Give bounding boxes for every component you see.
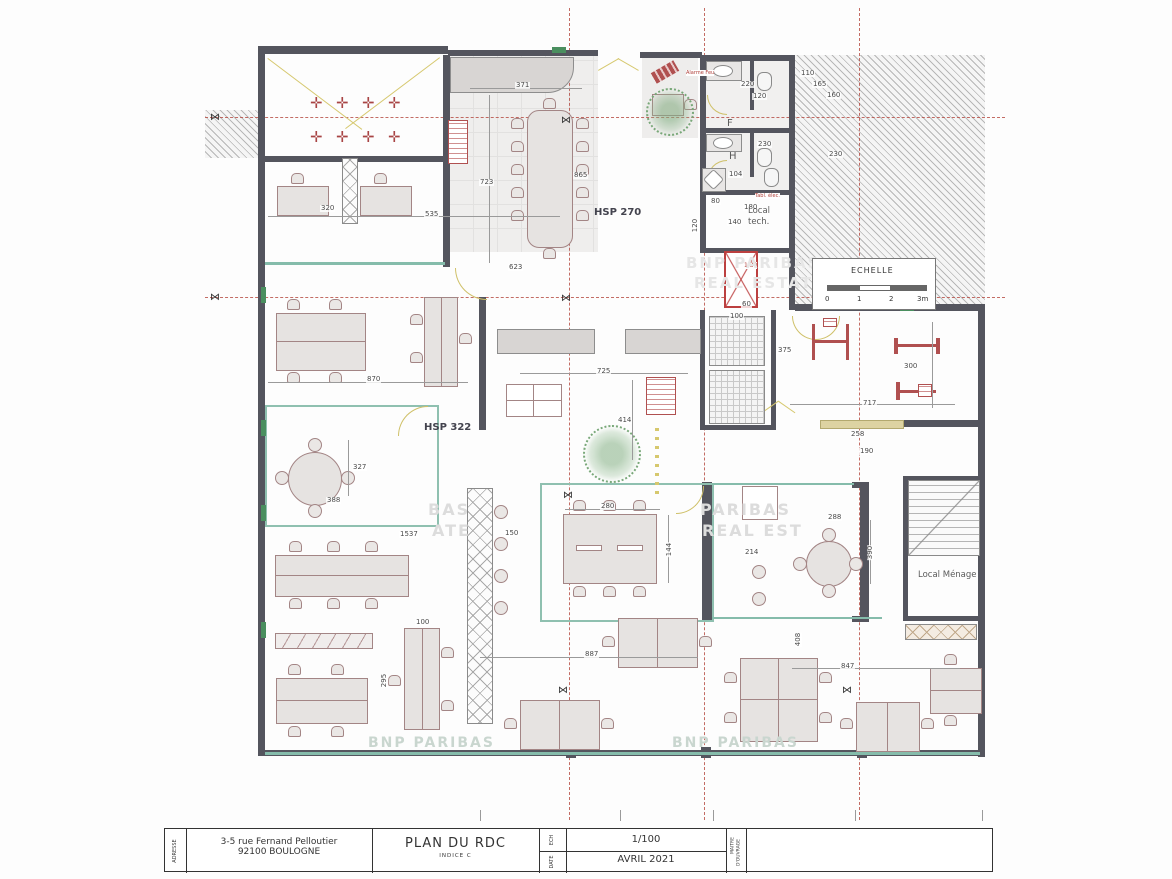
bicycle-icon: [310, 96, 323, 111]
room-label-local-tech: Local: [748, 206, 770, 216]
adresse-label: ADRESSE: [172, 829, 178, 873]
chair: [849, 557, 863, 571]
desk-divider: [657, 618, 658, 668]
dimension-label: 327: [352, 464, 367, 471]
chair: [543, 248, 556, 259]
dimension-label: 150: [504, 530, 519, 537]
window-mark: [261, 420, 266, 436]
watermark: REAL EST: [702, 521, 803, 540]
window-mark: [261, 287, 266, 303]
scale-bar-title: ECHELLE: [851, 266, 894, 275]
toilet: [757, 72, 772, 91]
chair: [511, 164, 524, 175]
title-block-cell: MAITRE D'OUVRAGE: [726, 829, 747, 873]
desk-divider: [778, 658, 779, 742]
wc-label-h: H: [729, 151, 737, 162]
desk: [360, 186, 412, 216]
scale-tick: 0: [825, 295, 829, 303]
chair: [819, 712, 832, 723]
dimension-label: 295: [381, 673, 388, 688]
date-label: DATE: [549, 848, 555, 876]
axis-marker-icon: [563, 491, 573, 501]
wall: [703, 128, 793, 133]
entrance-door-chevron: [618, 58, 639, 71]
desk-pod: [618, 618, 698, 668]
conference-table: [527, 110, 573, 248]
dimension-label: 300: [903, 363, 918, 370]
dimension-label: 288: [827, 514, 842, 521]
chair: [576, 118, 589, 129]
wall: [700, 310, 705, 430]
chair: [331, 664, 344, 675]
scale-bar-segment: [859, 285, 891, 291]
table-inset: [576, 545, 602, 551]
dimension-label: 1537: [399, 531, 419, 538]
dimension-label: 220: [740, 81, 755, 88]
chair: [576, 210, 589, 221]
room-label-local-menage: Local Ménage: [918, 570, 977, 580]
axis-marker-icon: [210, 293, 220, 303]
chair: [511, 141, 524, 152]
dimension-label: 717: [862, 400, 877, 407]
chair: [633, 586, 646, 597]
bicycle-icon: [362, 96, 375, 111]
bicycle-icon: [310, 130, 323, 145]
dim-line: [348, 440, 349, 496]
chair: [441, 700, 454, 711]
room-label-hsp270: HSP 270: [594, 207, 641, 218]
dimension-label: 80: [710, 198, 721, 205]
axis-line: [205, 117, 1005, 118]
wall: [448, 50, 598, 56]
chair: [441, 647, 454, 658]
chair: [289, 598, 302, 609]
gym-equipment: [936, 338, 940, 354]
sink: [713, 137, 733, 149]
dimension-label: 375: [777, 347, 792, 354]
desk-pod: [930, 668, 982, 714]
chair: [308, 438, 322, 452]
door-arc: [455, 268, 487, 300]
chair: [603, 586, 616, 597]
title-block: ADRESSE 3-5 rue Fernand Pelloutier 92100…: [164, 828, 993, 872]
dimension-label: 190: [859, 448, 874, 455]
dimension-label: 110: [800, 70, 815, 77]
desk-divider: [887, 702, 888, 752]
dimension-label: 100: [415, 619, 430, 626]
chair: [752, 592, 766, 606]
scale-value: 1/100: [566, 834, 726, 845]
wall: [771, 310, 776, 430]
cabinet: [905, 624, 977, 640]
title-block-cell-empty: [746, 829, 994, 873]
chair: [504, 718, 517, 729]
scale-bar-box: ECHELLE 0 1 2 3m: [812, 258, 936, 310]
wall: [852, 482, 869, 488]
kitchen-appliance: [448, 120, 468, 164]
watermark: PARIBAS: [700, 500, 791, 519]
round-table: [806, 541, 852, 587]
wall: [258, 46, 448, 54]
dimension-label: 104: [728, 171, 743, 178]
dimension-label: 390: [867, 545, 874, 560]
wc-label-f: F: [727, 118, 733, 129]
bicycle-icon: [336, 130, 349, 145]
wall: [903, 616, 983, 621]
bicycle-icon: [336, 96, 349, 111]
wall: [640, 52, 702, 58]
date-value: AVRIL 2021: [566, 854, 726, 865]
chair: [410, 314, 423, 325]
lounge-chair: [494, 569, 508, 583]
tree-icon: [646, 88, 694, 136]
fire-label: Alarme Feu: [686, 70, 714, 76]
chair: [699, 636, 712, 647]
chair: [724, 712, 737, 723]
gym-equipment: [918, 384, 932, 397]
axis-marker-icon: [842, 686, 852, 696]
dim-line: [792, 668, 960, 669]
gym-equipment: [812, 340, 849, 343]
chair: [601, 718, 614, 729]
maitre-label: D'OUVRAGE: [737, 831, 742, 875]
stair-cut-line: [908, 480, 980, 556]
wall: [700, 55, 706, 252]
chair: [388, 675, 401, 686]
dimension-label: 280: [600, 503, 615, 510]
cabinet: [820, 420, 904, 429]
chair: [793, 557, 807, 571]
sink: [713, 65, 733, 77]
bicycle-icon: [388, 96, 401, 111]
chair: [291, 173, 304, 184]
dimension-label: 414: [617, 417, 632, 424]
dimension-label: 60: [741, 301, 752, 308]
dimension-label: 623: [508, 264, 523, 271]
lounge-chair: [494, 537, 508, 551]
chair: [327, 541, 340, 552]
plan-indice: INDICE C: [372, 853, 539, 859]
chair: [331, 726, 344, 737]
dimension-label: 214: [744, 549, 759, 556]
chair: [573, 586, 586, 597]
watermark: REAL ESTATE: [694, 274, 825, 292]
scale-tick: 2: [889, 295, 893, 303]
wall: [700, 425, 776, 430]
gym-equipment: [894, 338, 898, 354]
bicycle-icon: [362, 130, 375, 145]
toilet: [764, 168, 779, 187]
fold-mark: [620, 810, 621, 821]
fold-mark: [713, 810, 714, 821]
gym-equipment: [823, 318, 837, 327]
dimension-label: 165: [812, 81, 827, 88]
chair: [511, 187, 524, 198]
chair: [944, 654, 957, 665]
wall: [479, 297, 486, 430]
dimension-label: 230: [828, 151, 843, 158]
title-block-cell: ECH DATE: [539, 829, 567, 873]
watermark: BNP PARIBAS: [672, 735, 799, 751]
door-chevron: [778, 401, 795, 413]
table-inset: [617, 545, 643, 551]
table-line: [506, 400, 562, 401]
bench-desk: [276, 678, 368, 724]
chair: [275, 471, 289, 485]
dimension-label: 723: [479, 179, 494, 186]
desk-divider: [275, 575, 409, 576]
desk-divider: [740, 699, 818, 700]
title-block-cell: PLAN DU RDC INDICE C: [372, 829, 540, 873]
storage-counter: [625, 329, 701, 354]
bicycle-icon: [388, 130, 401, 145]
desk-divider: [559, 700, 560, 750]
dimension-label: 144: [666, 542, 673, 557]
dimension-label: 725: [596, 368, 611, 375]
chair: [543, 98, 556, 109]
glass-facade: [265, 752, 980, 755]
desk-divider: [276, 341, 366, 342]
dimension-label: 160: [826, 92, 841, 99]
dimension-label: 320: [320, 205, 335, 212]
dimension-label: 258: [850, 431, 865, 438]
chair: [576, 187, 589, 198]
desk-divider: [930, 690, 982, 691]
lounge-chair: [494, 505, 508, 519]
fold-mark: [982, 810, 983, 821]
desk-divider: [422, 628, 423, 730]
watermark: BNP PARIBAS: [686, 254, 820, 272]
chair: [819, 672, 832, 683]
stairs: [709, 316, 765, 366]
toilet: [757, 148, 772, 167]
maitre-label: MAITRE: [731, 824, 736, 868]
glass-partition: [712, 483, 854, 485]
dim-line: [268, 216, 560, 217]
chair: [576, 141, 589, 152]
scale-tick: 1: [857, 295, 861, 303]
dimension-label: 120: [752, 93, 767, 100]
elec-panel-label: Tabl. élec.: [755, 193, 780, 199]
chair: [374, 173, 387, 184]
axis-marker-icon: [558, 686, 568, 696]
dimension-label: 535: [424, 211, 439, 218]
dimension-label: 120: [692, 218, 699, 233]
chair: [365, 598, 378, 609]
chair: [308, 504, 322, 518]
chair: [511, 118, 524, 129]
chair: [944, 715, 957, 726]
desk-pod: [520, 700, 600, 750]
room-label-local-tech: tech.: [748, 217, 769, 227]
glass-partition: [265, 262, 445, 265]
chair: [822, 528, 836, 542]
chair: [288, 664, 301, 675]
window-mark: [261, 622, 266, 638]
scale-tick: 3m: [917, 295, 928, 303]
printer: [646, 377, 676, 415]
chair: [365, 541, 378, 552]
dim-line: [932, 322, 933, 408]
gym-equipment: [896, 382, 900, 400]
fold-mark: [480, 810, 481, 821]
glass-partition: [712, 617, 882, 619]
dimension-label: 230: [757, 141, 772, 148]
chair: [822, 584, 836, 598]
dimension-label: 887: [584, 651, 599, 658]
title-block-cell: 3-5 rue Fernand Pelloutier 92100 BOULOGN…: [186, 829, 373, 873]
dimension-label: 408: [795, 632, 802, 647]
axis-line: [859, 8, 860, 820]
folding-door: [655, 428, 659, 494]
desk-divider: [441, 297, 442, 387]
desk-divider: [276, 700, 368, 701]
window-mark: [552, 47, 566, 53]
chair: [410, 352, 423, 363]
dimension-label: 870: [366, 376, 381, 383]
room-label-hsp322: HSP 322: [424, 422, 471, 433]
chair: [289, 541, 302, 552]
chair: [288, 726, 301, 737]
chair: [329, 299, 342, 310]
dimension-label: 371: [515, 82, 530, 89]
dimension-label: 865: [573, 172, 588, 179]
scale-bar-segment: [891, 285, 927, 291]
shelf: [275, 633, 373, 649]
chair: [459, 333, 472, 344]
cabinet: [342, 158, 358, 224]
watermark: ATE: [432, 521, 471, 540]
chair: [840, 718, 853, 729]
axis-marker-icon: [561, 116, 571, 126]
stairs: [709, 370, 765, 424]
chair: [724, 672, 737, 683]
desk-pod: [856, 702, 920, 752]
entrance-door-chevron: [598, 58, 619, 71]
watermark: BAS: [428, 500, 470, 519]
dimension-label: 388: [326, 497, 341, 504]
address-line2: 92100 BOULOGNE: [186, 847, 372, 857]
address-line1: 3-5 rue Fernand Pelloutier: [186, 837, 372, 847]
chair: [287, 299, 300, 310]
chair: [921, 718, 934, 729]
storage-counter: [497, 329, 595, 354]
title-block-cell: ADRESSE: [165, 829, 187, 873]
axis-marker-icon: [210, 113, 220, 123]
bench-desk: [276, 313, 366, 371]
chair: [327, 598, 340, 609]
wall: [750, 133, 754, 177]
dimension-label: 847: [840, 663, 855, 670]
wall: [258, 46, 265, 756]
axis-marker-icon: [561, 294, 571, 304]
plan-title: PLAN DU RDC: [372, 836, 539, 851]
lounge-chair: [494, 601, 508, 615]
floor-plan-sheet: 371 723 865 320 535 623 220 120 110 165 …: [0, 0, 1172, 879]
window-mark: [261, 505, 266, 521]
chair: [752, 565, 766, 579]
scale-bar-segment: [827, 285, 859, 291]
title-block-cell: 1/100 AVRIL 2021: [566, 829, 727, 873]
desk-pod: [740, 658, 818, 742]
watermark: BNP PARIBAS: [368, 735, 495, 751]
dimension-label: 100: [729, 313, 744, 320]
fold-mark: [855, 810, 856, 821]
bench-desk: [275, 555, 409, 597]
chair: [602, 636, 615, 647]
dimension-label: 140: [727, 219, 742, 226]
